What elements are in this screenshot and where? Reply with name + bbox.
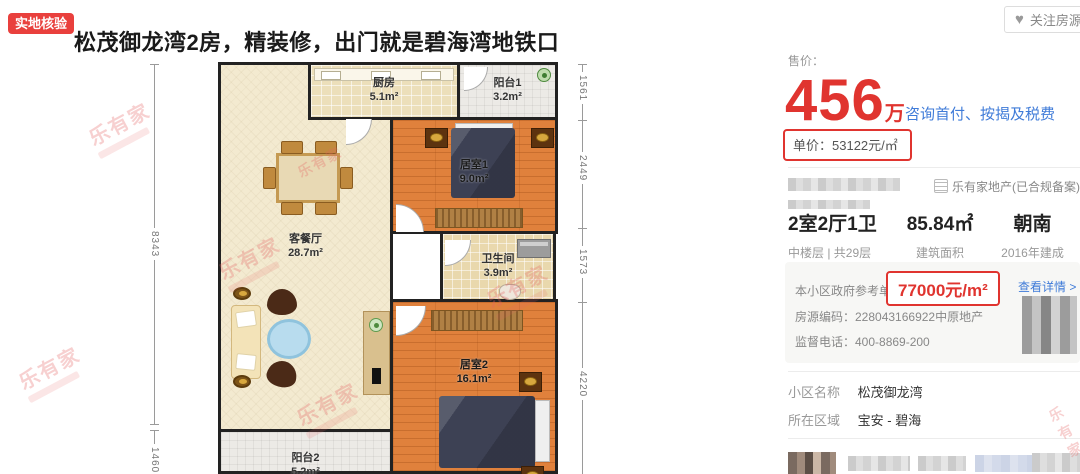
view-detail-link[interactable]: 查看详情 > xyxy=(1018,278,1076,295)
blurred-text xyxy=(1032,453,1080,472)
tv-cabinet xyxy=(363,311,390,395)
stat-area: 85.84㎡ 建筑面积 xyxy=(890,209,990,261)
room-bedroom-2: 居室2 16.1m² xyxy=(390,299,558,474)
dining-chair xyxy=(263,167,276,189)
toilet xyxy=(499,284,521,300)
dining-chair xyxy=(340,167,353,189)
door-arc xyxy=(346,119,372,145)
consult-payment-link[interactable]: 咨询首付、按揭及税费 xyxy=(905,103,1055,124)
floorplan-image: 客餐厅28.7m² 厨房5.1m² 阳台13.2m² xyxy=(218,62,558,474)
side-table xyxy=(233,375,251,388)
bed-pillows xyxy=(535,400,550,462)
bed xyxy=(439,396,535,468)
brand-watermark: 乐有家 xyxy=(83,95,159,160)
sale-price: 456万 xyxy=(785,72,905,130)
door-arc xyxy=(396,306,426,336)
dining-chair xyxy=(315,141,337,154)
blurred-qr-code xyxy=(1022,296,1077,354)
room-label: 阳台13.2m² xyxy=(493,77,522,105)
side-table xyxy=(233,287,251,300)
blurred-text xyxy=(848,456,910,471)
blurred-text xyxy=(918,456,966,471)
hotline: 监督电话：400-8869-200 xyxy=(795,333,930,350)
room-kitchen: 厨房5.1m² xyxy=(308,62,460,120)
room-label: 居室1 9.0m² xyxy=(460,159,489,187)
brand-watermark: 乐有家 xyxy=(13,339,89,404)
nightstand xyxy=(519,372,542,392)
community-name-row: 小区名称 松茂御龙湾 xyxy=(788,382,923,401)
tv xyxy=(372,368,381,384)
listing-page: 实地核验 松茂御龙湾2房，精装修，出门就是碧海湾地铁口 ♥ 关注房源 xyxy=(0,0,1080,474)
room-bathroom: 卫生间3.9m² xyxy=(440,231,556,302)
plant-icon xyxy=(369,318,383,332)
stat-orientation: 朝南 2016年建成 xyxy=(985,209,1080,261)
rug xyxy=(435,208,523,228)
nightstand xyxy=(425,128,448,148)
door-arc xyxy=(396,204,424,232)
nightstand xyxy=(521,466,544,474)
room-label: 厨房5.1m² xyxy=(370,77,399,105)
door-arc xyxy=(445,240,471,266)
gov-price-highlight: 77000元/m² xyxy=(886,271,1000,306)
follow-listing-button[interactable]: ♥ 关注房源 xyxy=(1004,6,1080,33)
nightstand xyxy=(531,128,554,148)
gov-price-value: 77000元/m² xyxy=(898,281,988,300)
follow-label: 关注房源 xyxy=(1030,10,1080,29)
divider xyxy=(788,371,1080,372)
page-title: 松茂御龙湾2房，精装修，出门就是碧海湾地铁口 xyxy=(74,25,559,57)
dining-chair xyxy=(281,202,303,215)
community-name-value: 松茂御龙湾 xyxy=(858,385,923,400)
washing-machine xyxy=(517,239,551,258)
wardrobe xyxy=(431,310,523,331)
dining-table xyxy=(276,153,340,203)
coffee-table xyxy=(267,319,311,359)
blurred-agent-avatar xyxy=(788,452,836,474)
stat-layout: 2室2厅1卫 中楼层 | 共29层 xyxy=(788,209,877,261)
plant-icon xyxy=(537,68,551,82)
agency-label: 乐有家地产(已合规备案) xyxy=(788,178,1080,195)
room-label: 阳台25.2m² xyxy=(291,452,320,474)
sofa xyxy=(231,305,261,379)
armchair xyxy=(264,358,299,390)
district-row: 所在区域 宝安 - 碧海 xyxy=(788,410,921,429)
sale-price-label: 售价： xyxy=(788,52,824,69)
verified-badge: 实地核验 xyxy=(8,13,74,34)
dining-chair xyxy=(315,202,337,215)
dining-chair xyxy=(281,141,303,154)
room-label: 客餐厅28.7m² xyxy=(288,233,323,261)
unit-price: 单价：53122元/㎡ xyxy=(793,138,898,153)
door-arc xyxy=(464,67,488,91)
blurred-agent-info xyxy=(788,200,870,209)
room-bedroom-1: 居室1 9.0m² xyxy=(390,117,558,234)
room-label: 卫生间3.9m² xyxy=(482,253,515,281)
district-value: 宝安 - 碧海 xyxy=(858,413,922,428)
room-balcony-2: 阳台25.2m² xyxy=(218,429,393,474)
unit-price-highlight: 单价：53122元/㎡ xyxy=(783,129,912,161)
divider xyxy=(788,438,1080,439)
room-label: 居室2 16.1m² xyxy=(457,359,492,387)
heart-icon: ♥ xyxy=(1015,12,1024,27)
building-list-icon xyxy=(934,179,948,193)
divider xyxy=(788,167,1080,168)
armchair xyxy=(267,289,297,315)
listing-code: 房源编码：228043166922中原地产 xyxy=(795,308,983,325)
room-balcony-1: 阳台13.2m² xyxy=(457,62,558,120)
